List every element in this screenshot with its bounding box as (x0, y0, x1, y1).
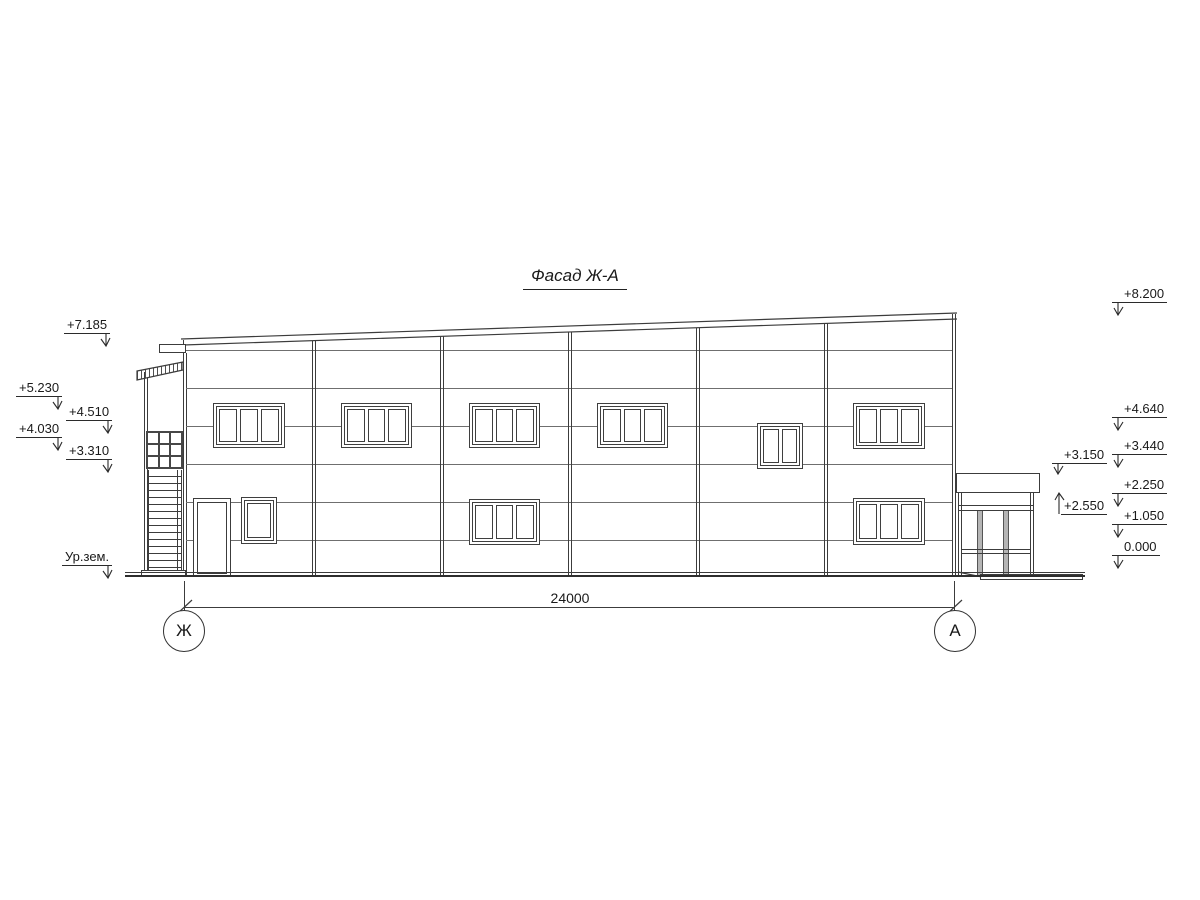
elevation-arrow-down-icon (98, 565, 114, 580)
window-upper-bay5-small (757, 423, 803, 469)
column-line (440, 336, 444, 576)
window-upper-bay6 (853, 403, 925, 449)
elevation-mark: +7.185 (64, 318, 110, 334)
axis-label-zh: Ж (176, 621, 192, 641)
porch-transom-top (958, 505, 1034, 506)
elevation-mark: +2.250 (1112, 478, 1167, 494)
window-upper-bay2 (341, 403, 412, 448)
elevation-arrow-down-icon (96, 333, 112, 348)
column-line (824, 323, 828, 576)
eave-strip (159, 344, 186, 353)
elevation-arrow-down-icon (98, 420, 114, 435)
stair-glazing-grid (146, 431, 183, 469)
porch-transom-bottom (958, 510, 1034, 511)
elevation-mark: +3.150 (1052, 448, 1107, 464)
entrance-door (193, 498, 231, 576)
column-line (696, 328, 700, 576)
window-upper-bay1 (213, 403, 285, 448)
ground-line-upper (125, 572, 1085, 573)
porch-canopy (956, 473, 1040, 493)
elevation-arrow-down-icon (1113, 555, 1129, 570)
window-upper-bay3 (469, 403, 540, 448)
elevation-arrow-down-icon (1113, 302, 1129, 317)
elevation-mark: +4.640 (1112, 402, 1167, 418)
drawing-title: Фасад Ж-А (470, 266, 680, 290)
window-near-door (241, 497, 277, 544)
elevation-arrow-down-icon (1113, 417, 1129, 432)
axis-bubble-zh: Ж (163, 610, 205, 652)
door-leaf (197, 502, 227, 574)
axis-bubble-a: А (934, 610, 976, 652)
elevation-mark: +4.510 (66, 405, 112, 421)
column-line (312, 341, 316, 576)
facade-right-edge (952, 314, 956, 576)
porch-midrail-top (961, 549, 1031, 550)
window-lower-bay3 (469, 499, 540, 545)
elevation-arrow-down-icon (1113, 454, 1129, 469)
dimension-label: 24000 (520, 590, 620, 606)
porch-midrail-bottom (961, 553, 1031, 554)
elevation-mark: +2.550 (1052, 491, 1104, 515)
elevation-arrow-down-icon (1053, 463, 1069, 476)
ground-level-mark: Ур.зем. (62, 550, 112, 566)
porch-mullion (977, 511, 983, 575)
elevation-mark: +4.030 (16, 422, 62, 438)
elevation-arrow-down-icon (48, 396, 64, 411)
elevation-mark: +5.230 (16, 381, 62, 397)
ground-line (125, 575, 1085, 577)
elevation-arrow-down-icon (98, 459, 114, 474)
drawing-title-text: Фасад Ж-А (523, 266, 627, 290)
window-lower-bay6 (853, 498, 925, 545)
elevation-arrow-down-icon (1113, 524, 1129, 539)
dimension-line (184, 607, 955, 608)
axis-label-a: А (949, 621, 960, 641)
facade-left-edge (183, 340, 184, 576)
stair-tower-wall-outer (144, 372, 145, 574)
elevation-mark: 0.000 (1112, 540, 1160, 556)
stair-stringer (177, 470, 178, 574)
porch-mullion (1003, 511, 1009, 575)
elevation-mark: +8.200 (1112, 287, 1167, 303)
elevation-mark: +3.440 (1112, 439, 1167, 455)
elevation-mark: +1.050 (1112, 509, 1167, 525)
elevation-arrow-down-icon (1113, 493, 1129, 508)
elevation-mark: +3.310 (66, 444, 112, 460)
elevation-arrow-down-icon (48, 437, 64, 452)
drawing-sheet: Фасад Ж-А (0, 0, 1200, 900)
column-line (568, 332, 572, 576)
window-upper-bay4 (597, 403, 668, 448)
